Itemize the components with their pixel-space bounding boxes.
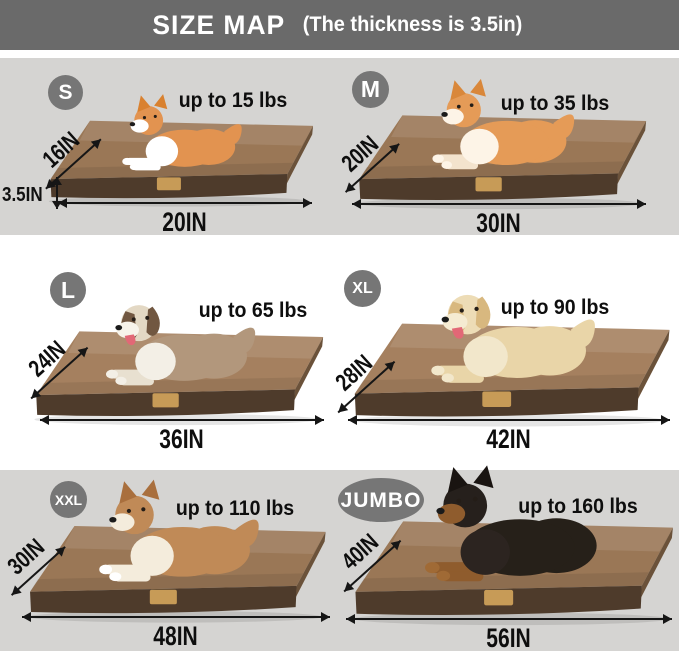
width-label: 56IN xyxy=(487,623,531,651)
width-dimension: 48IN xyxy=(22,616,330,651)
width-dimension: 30IN xyxy=(352,203,646,239)
dog-illustration-doberman xyxy=(425,465,597,581)
product-photo-jumbo xyxy=(343,461,675,644)
panel-size-xxl: XXL up to 110 lbs xyxy=(0,470,340,651)
panel-size-s: S up to 15 lbs xyxy=(0,58,340,235)
panel-size-l: L up to 65 lbs xyxy=(0,235,340,470)
width-arrow-icon xyxy=(352,203,646,205)
thickness-note: (The thickness is 3.5in) xyxy=(302,13,522,37)
panel-size-xl: XL up to 90 lbs xyxy=(340,235,679,470)
width-arrow-icon xyxy=(346,618,672,620)
size-row-small-medium: S up to 15 lbs xyxy=(0,58,679,235)
product-photo-xl xyxy=(342,264,672,445)
width-dimension: 42IN xyxy=(348,419,670,455)
dog-bed-photo-alaskan-malamute xyxy=(18,470,328,640)
width-arrow-icon xyxy=(40,419,324,421)
width-dimension: 36IN xyxy=(40,419,324,455)
width-label: 36IN xyxy=(160,424,204,455)
dog-bed-photo-golden-retriever xyxy=(342,264,672,445)
size-row-xxl-jumbo: XXL up to 110 lbs xyxy=(0,470,679,651)
dog-illustration-shiba-inu xyxy=(432,79,574,169)
width-label: 48IN xyxy=(154,621,198,651)
width-label: 20IN xyxy=(163,207,207,238)
title-banner: SIZE MAP (The thickness is 3.5in) xyxy=(0,0,679,50)
size-row-large-xlarge: L up to 65 lbs xyxy=(0,235,679,470)
thickness-label: 3.5IN xyxy=(2,184,43,207)
width-dimension: 56IN xyxy=(346,618,672,651)
dog-bed-photo-doberman xyxy=(343,461,675,644)
width-dimension: 20IN xyxy=(58,202,312,238)
width-arrow-icon xyxy=(22,616,330,618)
product-photo-xxl xyxy=(18,470,328,640)
page-title: SIZE MAP xyxy=(153,10,286,41)
dog-illustration-corgi xyxy=(122,94,241,170)
width-label: 42IN xyxy=(487,424,531,455)
width-arrow-icon xyxy=(348,419,670,421)
width-arrow-icon xyxy=(58,202,312,204)
panel-size-m: M up to 35 lbs xyxy=(340,58,679,235)
dog-illustration-alaskan-malamute xyxy=(99,480,258,582)
size-map-infographic: SIZE MAP (The thickness is 3.5in) S up t… xyxy=(0,0,679,651)
panel-size-jumbo: JUMBO up to 160 lbs xyxy=(340,470,679,651)
